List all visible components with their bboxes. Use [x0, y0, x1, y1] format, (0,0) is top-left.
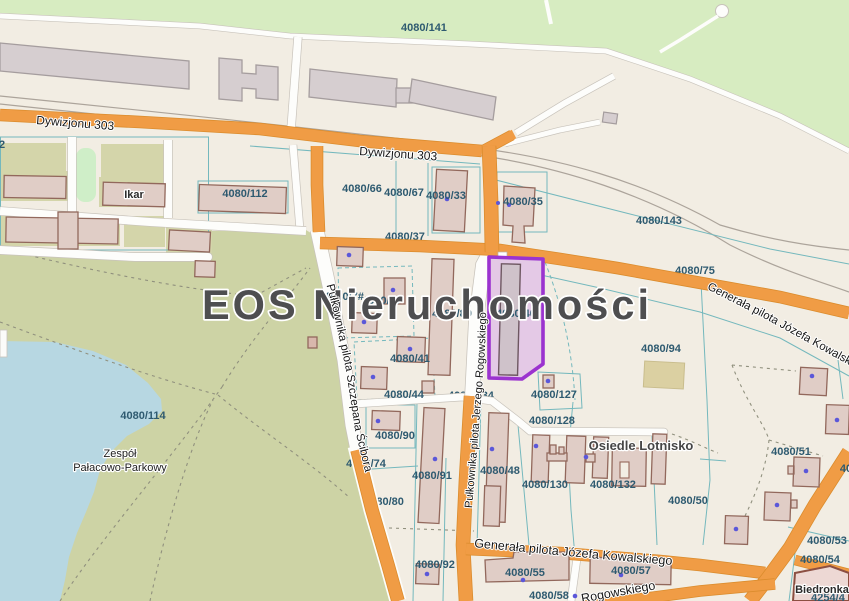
svg-text:4080/44: 4080/44	[384, 389, 425, 401]
svg-text:Pałacowo-Parkowy: Pałacowo-Parkowy	[73, 462, 167, 474]
svg-text:4080/57: 4080/57	[611, 565, 651, 577]
svg-text:4080/54: 4080/54	[800, 554, 841, 566]
svg-text:4080/66: 4080/66	[342, 183, 382, 195]
svg-text:Zespół: Zespół	[103, 448, 137, 460]
svg-text:4080/143: 4080/143	[636, 215, 682, 227]
svg-text:4080/48: 4080/48	[480, 465, 520, 477]
svg-text:4080/92: 4080/92	[415, 559, 455, 571]
svg-text:4080/67: 4080/67	[384, 187, 424, 199]
svg-text:4080/130: 4080/130	[522, 479, 568, 491]
svg-text:4080/112: 4080/112	[222, 188, 267, 200]
svg-text:40: 40	[840, 463, 849, 475]
svg-text:4080/53: 4080/53	[807, 535, 847, 547]
svg-text:4080/58: 4080/58	[529, 590, 569, 601]
svg-text:4080/127: 4080/127	[531, 389, 577, 401]
svg-text:4080/50: 4080/50	[668, 495, 708, 507]
svg-text:4080/132: 4080/132	[590, 479, 636, 491]
svg-text:4080/114: 4080/114	[120, 410, 166, 422]
svg-text:EOS Nieruchomości: EOS Nieruchomości	[202, 281, 652, 328]
svg-text:4080/51: 4080/51	[771, 446, 811, 458]
svg-text:4080/128: 4080/128	[529, 415, 575, 427]
svg-text:4080/35: 4080/35	[503, 196, 543, 208]
svg-text:Ikar: Ikar	[124, 189, 144, 201]
svg-text:4080/94: 4080/94	[641, 343, 682, 355]
svg-text:Osiedle Lotnisko: Osiedle Lotnisko	[589, 438, 694, 453]
svg-text:4080/41: 4080/41	[390, 353, 430, 365]
svg-text:4080/55: 4080/55	[505, 567, 545, 579]
svg-text:4080/91: 4080/91	[412, 470, 452, 482]
svg-text:4080/141: 4080/141	[401, 22, 447, 34]
svg-text:Biedronka: Biedronka	[795, 584, 849, 596]
svg-text:4080/33: 4080/33	[426, 190, 466, 202]
svg-text:4080/90: 4080/90	[375, 430, 415, 442]
svg-text:2: 2	[0, 139, 5, 151]
